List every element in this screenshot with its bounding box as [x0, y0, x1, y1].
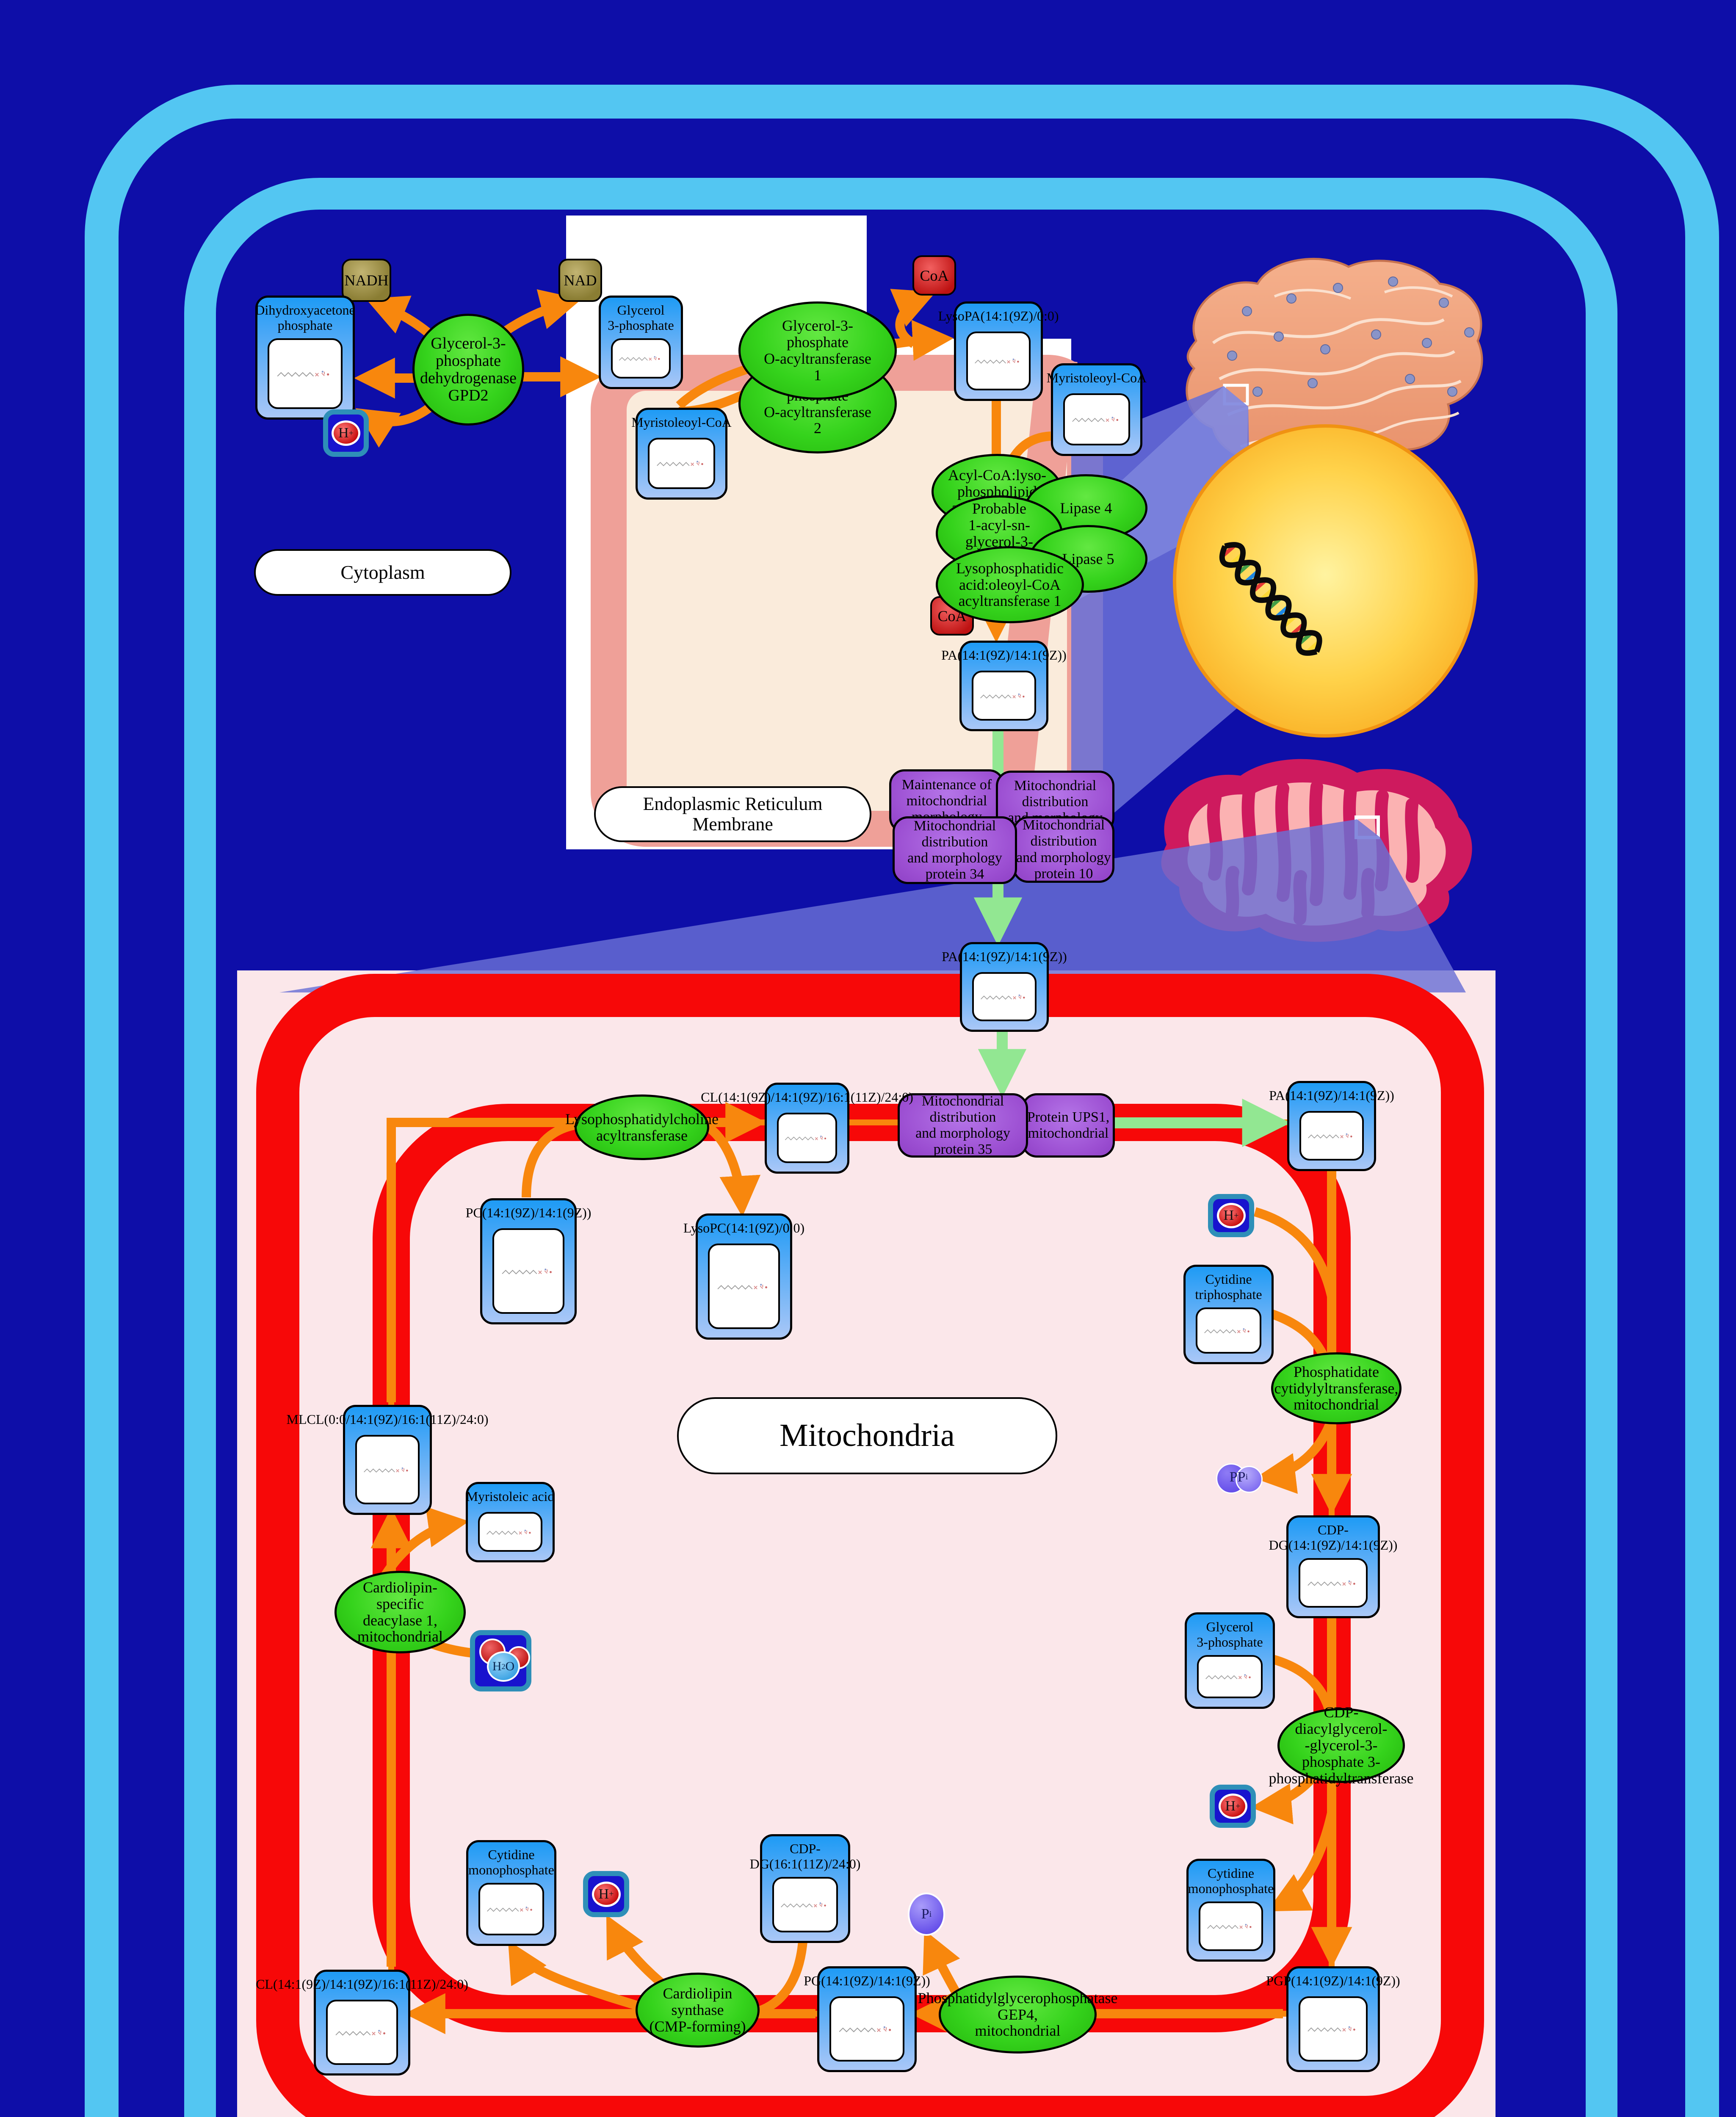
metabolite-pgp[interactable]: PGP(14:1(9Z)/14:1(9Z))	[1286, 1966, 1380, 2072]
enzyme-gpat1[interactable]: Glycerol-3- phosphate O-acyltransferase …	[738, 301, 897, 400]
metabolite-lysopc[interactable]: LysoPC(14:1(9Z)/0:0)	[696, 1213, 792, 1340]
metabolite-pa-er[interactable]: PA(14:1(9Z)/14:1(9Z))	[959, 641, 1048, 731]
metabolite-h-im-3[interactable]: H+	[583, 1871, 629, 1917]
metabolite-g3p-cytoplasm[interactable]: Glycerol 3-phosphate	[599, 296, 683, 389]
metabolite-cmp-right[interactable]: Cytidine monophosphate	[1186, 1859, 1275, 1962]
enzyme-pgps[interactable]: CDP- diacylglycerol- -glycerol-3- phosph…	[1277, 1708, 1405, 1783]
enzyme-crls[interactable]: Cardiolipin synthase (CMP-forming)	[636, 1973, 760, 2048]
metabolite-cdpdg-pa[interactable]: CDP- DG(14:1(9Z)/14:1(9Z))	[1286, 1515, 1380, 1618]
metabolite-h-im-2[interactable]: H+	[1210, 1785, 1256, 1828]
enzyme-pcyt2[interactable]: Phosphatidate cytidylyltransferase, mito…	[1271, 1352, 1402, 1424]
metabolite-nad[interactable]: NAD	[558, 259, 602, 302]
cytoplasm-label: Cytoplasm	[254, 549, 511, 596]
metabolite-cmp-bottom[interactable]: Cytidine monophosphate	[466, 1840, 556, 1946]
metabolite-mlcl[interactable]: MLCL(0:0/14:1(9Z)/16:1(11Z)/24:0)	[343, 1405, 432, 1515]
metabolite-pa-mid[interactable]: PA(14:1(9Z)/14:1(9Z))	[960, 942, 1049, 1032]
metabolite-ctp[interactable]: Cytidine triphosphate	[1183, 1265, 1274, 1364]
metabolite-cl-top[interactable]: CL(14:1(9Z)/14:1(9Z)/16:1(11Z)/24:0)	[765, 1083, 849, 1174]
arrow-ppi-out	[1264, 1419, 1332, 1477]
complex-ups1[interactable]: Protein UPS1, mitochondrial	[1022, 1093, 1115, 1158]
enzyme-lpcat[interactable]: Lysophosphatidylcholine acyltransferase	[575, 1094, 709, 1160]
enzyme-gep4[interactable]: Phosphatidylglycerophosphatase GEP4, mit…	[939, 1976, 1097, 2053]
metabolite-cl-bottom[interactable]: CL(14:1(9Z)/14:1(9Z)/16:1(11Z)/24:0)	[314, 1970, 410, 2076]
metabolite-ppi[interactable]: PPi	[1219, 1462, 1259, 1492]
metabolite-nadh[interactable]: NADH	[342, 259, 391, 302]
metabolite-dhap[interactable]: Dihydroxyacetone phosphate	[255, 296, 355, 420]
complex-mdm34[interactable]: Mitochondrial distribution and morpholog…	[893, 816, 1017, 884]
metabolite-g3p-mito[interactable]: Glycerol 3-phosphate	[1185, 1612, 1275, 1709]
metabolite-pi[interactable]: Pi	[908, 1893, 945, 1936]
metabolite-h-cytoplasm[interactable]: H+	[323, 409, 369, 457]
metabolite-lysopa[interactable]: LysoPA(14:1(9Z)/0:0)	[954, 301, 1043, 401]
complex-mdm35[interactable]: Mitochondrial distribution and morpholog…	[898, 1093, 1028, 1158]
enzyme-gpd2[interactable]: Glycerol-3- phosphate dehydrogenase GPD2	[412, 314, 524, 426]
enzyme-lpaat1[interactable]: Lysophosphatidic acid:oleoyl-CoA acyltra…	[936, 546, 1084, 623]
metabolite-coa-top[interactable]: CoA	[912, 255, 956, 296]
metabolite-myristoleoyl-coa-right[interactable]: Myristoleoyl-CoA	[1051, 363, 1142, 456]
metabolite-pg[interactable]: PG(14:1(9Z)/14:1(9Z))	[817, 1966, 917, 2072]
metabolite-cdpdg-cl[interactable]: CDP- DG(16:1(11Z)/24:0)	[760, 1834, 850, 1943]
enzyme-cld1[interactable]: Cardiolipin- specific deacylase 1, mitoc…	[334, 1571, 466, 1653]
metabolite-pc[interactable]: PC(14:1(9Z)/14:1(9Z))	[480, 1198, 577, 1324]
metabolite-h2o[interactable]: H2O	[470, 1630, 531, 1691]
mitochondria-label: Mitochondria	[677, 1397, 1057, 1474]
arrow-cmp-out-1	[1275, 1813, 1332, 1907]
metabolite-myristoleic-acid[interactable]: Myristoleic acid	[466, 1482, 555, 1562]
metabolite-h-im-1[interactable]: H+	[1208, 1194, 1254, 1237]
metabolite-pa-om[interactable]: PA(14:1(9Z)/14:1(9Z))	[1287, 1081, 1376, 1171]
metabolite-myristoleoyl-coa-er[interactable]: Myristoleoyl-CoA	[636, 408, 727, 500]
er-membrane-label: Endoplasmic Reticulum Membrane	[594, 786, 871, 842]
complex-mdm10[interactable]: Mitochondrial distribution and morpholog…	[1013, 816, 1114, 883]
pathway-canvas: NADH NAD CoA CoA Dihydroxyacetone phosph…	[0, 0, 1736, 2117]
